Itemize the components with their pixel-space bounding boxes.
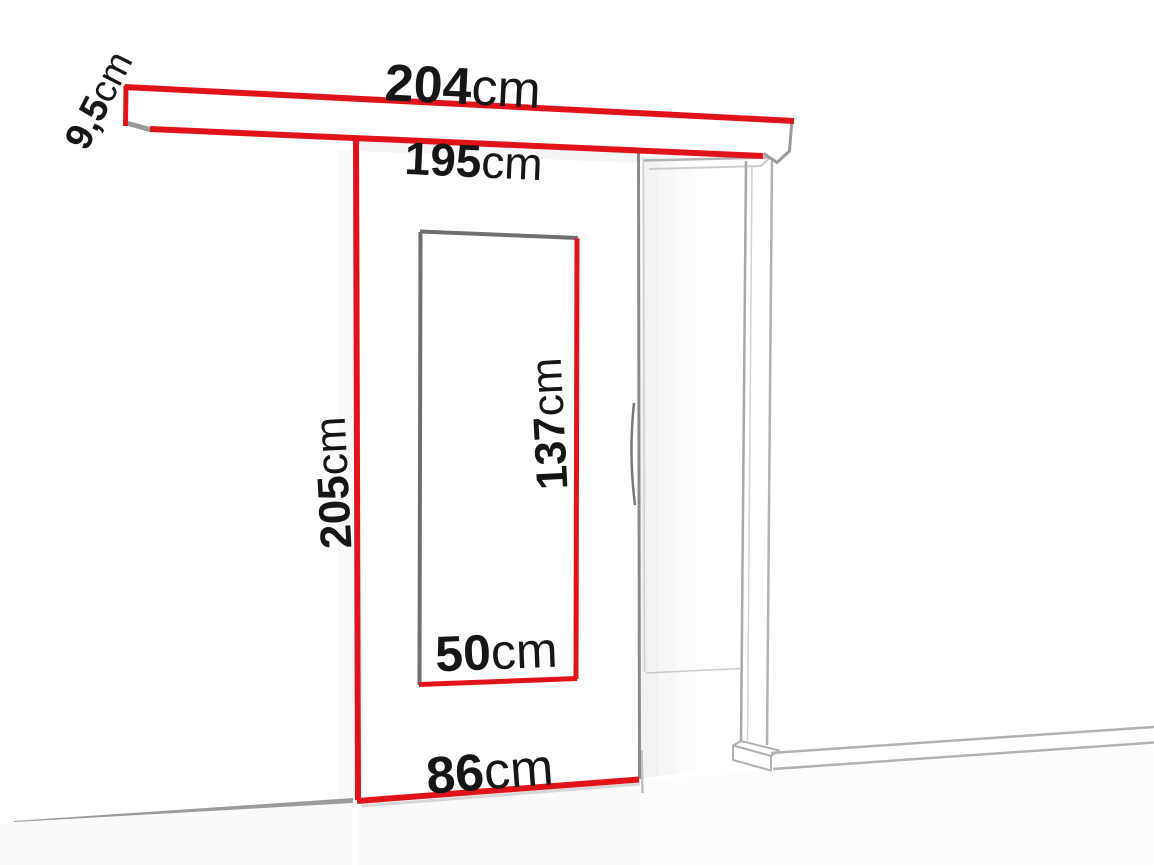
glass-right-edge-dimension-line	[576, 239, 577, 680]
rail-length-label: 204cm	[383, 54, 542, 120]
frame-right-post-outer-left-line	[741, 161, 746, 745]
door-panel	[355, 137, 640, 806]
door-shadow-strip-2	[659, 156, 677, 776]
diagram-canvas: 204cm 9,5cm 195cm 205cm 137cm 50cm 86cm	[0, 0, 1154, 865]
floor-shading-right	[640, 745, 1154, 865]
door-shadow-strip-3	[677, 157, 695, 774]
door-height-label: 205cm	[306, 416, 362, 550]
frame-right-post-outer-right-line	[767, 159, 772, 745]
sliding-door-diagram: 204cm 9,5cm 195cm 205cm 137cm 50cm 86cm	[0, 0, 1154, 865]
frame-right-post-inner-line	[748, 165, 753, 746]
floor-shading-left	[0, 800, 353, 865]
glass-left-edge	[420, 232, 421, 685]
door-corner-shadow-sliver	[642, 750, 643, 793]
glass-height-label: 137cm	[522, 357, 578, 491]
door-frame	[643, 158, 1154, 771]
frame-left-jamb-line	[644, 161, 645, 672]
door-right-edge	[639, 151, 640, 779]
passage-width-label: 195cm	[404, 132, 544, 190]
door-width-label: 86cm	[424, 738, 555, 805]
glass-width-label: 50cm	[434, 622, 558, 683]
